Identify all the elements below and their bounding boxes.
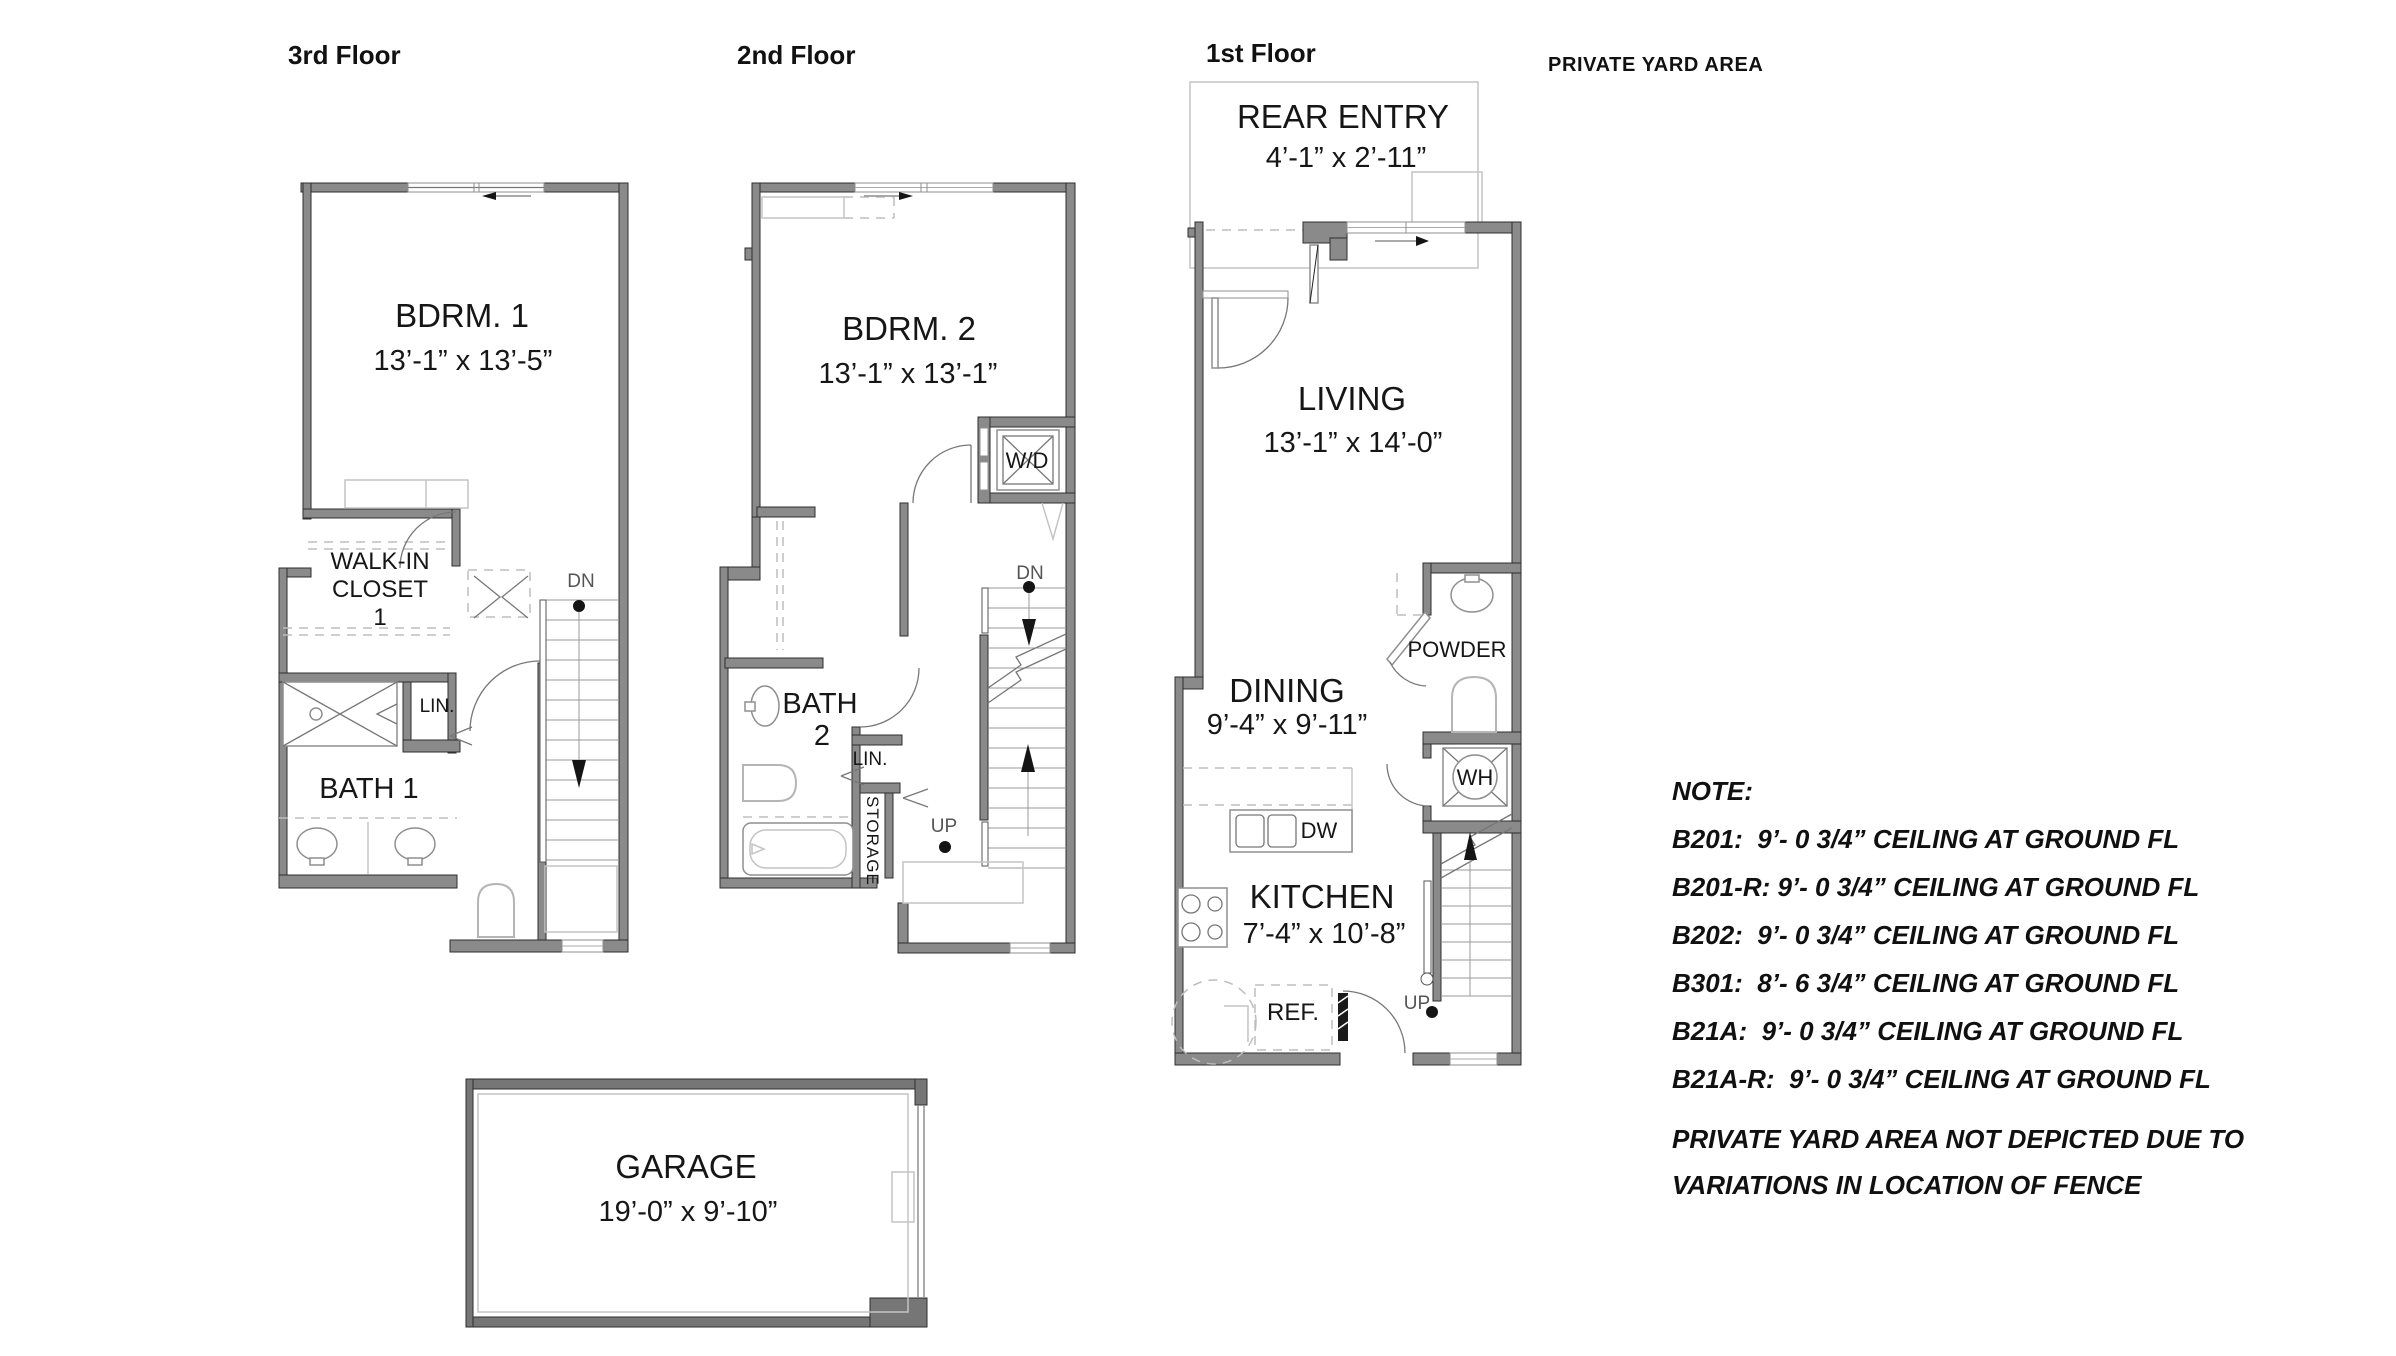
bdrm1-dims: 13’-1” x 13’-5” (374, 347, 553, 376)
floor1-title: 1st Floor (1206, 38, 1316, 69)
note-line: B202: 9’- 0 3/4” CEILING AT GROUND FL (1672, 920, 2179, 951)
garage-dims: 19’-0” x 9’-10” (599, 1198, 778, 1227)
kitchen-dims: 7’-4” x 10’-8” (1243, 920, 1406, 949)
floor3-title: 3rd Floor (288, 40, 401, 71)
bed-outline (762, 197, 894, 218)
refrigerator-label: REF. (1267, 1001, 1319, 1025)
water-heater-label: WH (1457, 767, 1494, 789)
stairs-up-label: UP (1404, 994, 1430, 1013)
kitchen-door (1338, 991, 1405, 1053)
note-heading: NOTE: (1672, 776, 1753, 807)
bifold-door-symbol (468, 570, 530, 618)
note-line: B201-R: 9’- 0 3/4” CEILING AT GROUND FL (1672, 872, 2199, 903)
note-line: B21A: 9’- 0 3/4” CEILING AT GROUND FL (1672, 1016, 2183, 1047)
washer-dryer-label: W/D (1006, 450, 1049, 472)
stove-icon (1178, 888, 1227, 947)
kitchen-label: KITCHEN (1250, 880, 1395, 913)
bath1-label: BATH 1 (319, 775, 418, 804)
walkin-closet-label-line1: WALK-IN (330, 550, 429, 574)
living-dims: 13’-1” x 14’-0” (1264, 429, 1443, 458)
toilet (1452, 677, 1496, 732)
floorplan-sheet: 3rd Floor 2nd Floor 1st Floor PRIVATE YA… (0, 0, 2396, 1356)
note-line: B201: 9’- 0 3/4” CEILING AT GROUND FL (1672, 824, 2179, 855)
note-footer-line1: PRIVATE YARD AREA NOT DEPICTED DUE TO (1672, 1124, 2244, 1155)
stairs-dn-label: DN (1016, 564, 1043, 583)
toilet (743, 765, 796, 801)
stairs-down (540, 600, 619, 932)
bath-sink (745, 686, 779, 726)
dining-dims: 9’-4” x 9’-11” (1207, 711, 1368, 740)
note-line: B21A-R: 9’- 0 3/4” CEILING AT GROUND FL (1672, 1064, 2211, 1095)
table-outline (1172, 980, 1256, 1064)
powder-label: POWDER (1408, 639, 1507, 661)
swing-arrow (1375, 236, 1429, 246)
floor2-title: 2nd Floor (737, 40, 855, 71)
washer-dryer-icon (997, 430, 1063, 539)
walkin-closet-label-line3: 1 (373, 606, 386, 630)
closet-shelves (777, 521, 783, 650)
rear-entry-dims: 4’-1” x 2’-11” (1266, 144, 1427, 173)
bath2-label-line2: 2 (814, 722, 830, 751)
stairs-dn-label: DN (567, 572, 594, 591)
garage-label: GARAGE (615, 1150, 756, 1183)
bath2-label-line1: BATH (782, 690, 857, 719)
bed-outline (345, 480, 468, 508)
private-yard-area-label: PRIVATE YARD AREA (1548, 54, 1763, 77)
bdrm2-label: BDRM. 2 (842, 312, 976, 345)
swing-arrow (482, 192, 531, 200)
note-line: B301: 8’- 6 3/4” CEILING AT GROUND FL (1672, 968, 2179, 999)
linen-label: LIN. (420, 697, 455, 716)
dishwasher-label: DW (1301, 820, 1338, 842)
note-footer-line2: VARIATIONS IN LOCATION OF FENCE (1672, 1170, 2141, 1201)
shower (283, 682, 397, 746)
swing-arrow (864, 192, 913, 200)
bdrm1-label: BDRM. 1 (395, 299, 529, 332)
rear-entry-label: REAR ENTRY (1237, 100, 1449, 133)
entry-door (1203, 245, 1318, 368)
living-label: LIVING (1298, 382, 1406, 415)
bathtub (743, 817, 853, 875)
stairs-up-label: UP (931, 817, 957, 836)
storage-label: STORAGE (864, 796, 881, 886)
vanity-sinks (279, 818, 457, 874)
toilet (478, 884, 514, 937)
bdrm2-dims: 13’-1” x 13’-1” (819, 360, 998, 389)
walkin-closet-label-line2: CLOSET (332, 578, 428, 602)
linen-label: LIN. (853, 750, 888, 769)
dining-label: DINING (1229, 674, 1345, 707)
